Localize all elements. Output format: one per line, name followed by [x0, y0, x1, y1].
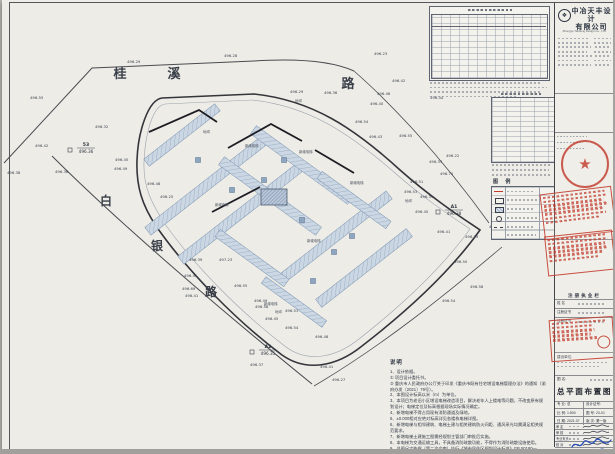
new-elevator-label: 新增电梯 [215, 202, 229, 207]
table-footnote [430, 87, 547, 89]
spot-elevation: 496.55 [399, 133, 413, 138]
drawing-title: 总平面布置图 [555, 386, 614, 397]
spot-elevation: 496.32 [95, 124, 109, 129]
road-name-char: 银 [151, 238, 164, 253]
new-elevator-label: 新增电梯 [307, 238, 321, 243]
seal-star-icon: ★ [578, 157, 591, 172]
spot-elevation: 496.55 [30, 95, 44, 100]
spot-elevation: 496.42 [392, 78, 406, 83]
elevator-box [311, 279, 316, 284]
field-label: 设计证号 [586, 402, 600, 406]
legend-symbol-circle [496, 216, 502, 222]
signature-row: 审 定 [555, 423, 614, 429]
spot-elevation: 496.46 [377, 91, 391, 96]
field-label: 图 号 [586, 411, 594, 415]
notes-title: 说明 [390, 360, 547, 368]
ground-level-label: 地坪 [275, 309, 283, 314]
spot-elevation: 496.38 [7, 170, 21, 175]
ref-elevation: 496.36 [79, 149, 94, 154]
ground-level-label: 地坪 [203, 129, 211, 134]
spot-elevation: 496.37 [250, 362, 264, 367]
spot-elevation: 496.55 [234, 283, 248, 288]
road-name-char: 白 [100, 193, 112, 208]
elevator-box [332, 250, 337, 255]
spot-elevation: 497.23 [219, 257, 233, 262]
legend-symbol-building [495, 198, 504, 204]
elevator-box [300, 218, 305, 223]
red-drawing-release-stamp [549, 316, 615, 362]
spot-elevation: 496.70 [440, 171, 454, 176]
printed-name [569, 432, 580, 434]
spot-elevation: 496.33 [429, 159, 443, 164]
spot-elevation: 496.54 [285, 325, 299, 330]
spot-elevation: 496.45 [115, 157, 129, 162]
spot-elevation: 496.42 [35, 143, 49, 148]
elevator-box [196, 158, 201, 163]
signature-role-label: 校 对 [555, 442, 569, 447]
legend-text [507, 234, 536, 236]
spot-elevation: 496.39 [465, 234, 479, 239]
spot-elevation: 496.27 [332, 377, 346, 382]
road-name-char: 路 [341, 76, 355, 92]
reg-row-label: 姓 名 [555, 300, 578, 308]
field-label: 专 业 [557, 402, 565, 406]
spot-elevation: 496.29 [127, 59, 141, 64]
spot-elevation: 496.39 [189, 257, 203, 262]
field-value: 23-01 [596, 411, 605, 415]
table-grid [431, 14, 548, 79]
spot-elevation: 496.28 [224, 53, 238, 58]
elevator-box [350, 234, 355, 239]
company-name-english: Zhongye Tianfeng Design Co., LTD [556, 29, 613, 33]
spot-elevation: 496.58 [470, 284, 484, 289]
legend-text [507, 226, 533, 228]
new-elevator-label: 新增电梯 [299, 149, 313, 154]
spot-elevation: 496.41 [184, 273, 198, 278]
elevator-box [262, 178, 267, 183]
elevator-box [282, 158, 287, 163]
new-elevator-label: 新增电梯 [264, 301, 278, 306]
spot-elevation: 496.45 [415, 209, 429, 214]
spot-elevation: 496.40 [370, 101, 384, 106]
ref-elevation: 496.35 [261, 351, 276, 356]
micro-text [557, 136, 587, 137]
road-name-char: 桂 [112, 66, 126, 82]
signature-role-label: 审 核 [555, 430, 569, 435]
legend-symbol-dashline [494, 227, 503, 228]
road-name-char: 路 [205, 284, 218, 299]
spot-elevation: 496.36 [324, 90, 338, 95]
ground-level-label: 地坪 [295, 98, 303, 103]
legend-text [507, 217, 537, 219]
field-value: 总 [567, 402, 571, 406]
spot-elevation: 496.50 [454, 259, 468, 264]
paper: 桂溪路白银路496.29496.28496.23496.55496.42496.… [2, 0, 613, 449]
spot-elevation: 496.53 [404, 189, 418, 194]
spot-elevation: 496.43 [369, 134, 383, 139]
spot-elevation: 496.54 [355, 119, 369, 124]
drawing-name-section: 图 名: 总平面布置图 [555, 376, 614, 401]
indicators-note [492, 174, 551, 176]
ref-name: 53 [83, 142, 89, 148]
spot-elevation: 496.69 [182, 286, 196, 291]
legend-symbol-redline [494, 191, 503, 192]
note-line: 6、新增电梯与相邻建筑、电梯土建与相关建筑防火间距、通风采光均需满足相关规范要求… [390, 422, 547, 434]
official-round-seal: ★ [561, 140, 609, 188]
handwritten-signature [582, 424, 610, 429]
company-block: ❖ 中冶天丰设计 有限公司 Zhongye Tianfeng Design Co… [555, 3, 614, 93]
indicators-caption [501, 93, 543, 95]
central-elevator-shaft [261, 189, 287, 205]
spot-elevation: 496.48 [315, 334, 329, 339]
note-line: 3、本项目为老旧小区增设电梯改造项目，解决老年人上楼难等问题，不改变原有规划设计… [390, 398, 547, 410]
fields-section: 专 业: 总 设计证号: 比 例: 1:500 图 号: 23-01 日 期: … [555, 401, 614, 425]
ground-level-label: 地坪 [405, 198, 413, 203]
building-strip [276, 191, 392, 285]
ref-elevation: 496.38 [447, 211, 462, 216]
signature-role-label: 审 定 [555, 424, 569, 429]
building-strip [144, 104, 220, 167]
stamp-mini-seal-icon [597, 335, 611, 349]
general-notes: 说明 1、设计依据。① 项目设计委托书。② 重庆市人民政府办公厅关于印发《重庆市… [390, 360, 547, 454]
ref-square-symbol [436, 210, 440, 214]
spot-elevation: 496.22 [446, 153, 460, 158]
ref-square-symbol [250, 350, 254, 354]
new-elevator-label: 新增电梯 [245, 143, 259, 148]
spot-elevation: 496.41 [320, 364, 334, 369]
table-caption [468, 9, 512, 11]
spot-elevation: 496.41 [437, 229, 451, 234]
registration-header: 注册执业栏 [555, 292, 614, 299]
legend-col-rule [505, 187, 506, 239]
spot-elevation: 496.54 [442, 298, 456, 303]
spot-elevation: 496.51 [285, 308, 299, 313]
spot-elevation: 496.45 [265, 316, 279, 321]
field-label: 比 例 [557, 411, 565, 415]
spot-elevation: 496.49 [114, 166, 128, 171]
legend-symbol-hatched [495, 207, 504, 213]
legend-text [507, 191, 535, 193]
printed-name [569, 426, 580, 428]
scanned-drawing-sheet: 桂溪路白银路496.29496.28496.23496.55496.42496.… [0, 0, 615, 454]
elevator-box [230, 188, 235, 193]
signature-row: 审 核 [555, 429, 614, 435]
ref-name: A2 [265, 344, 272, 350]
spot-elevation: 496.33 [420, 194, 434, 199]
table-header-rule [431, 26, 546, 27]
drawing-name-label: 图 名: [557, 377, 566, 382]
spot-elevation: 496.51 [410, 179, 424, 184]
economic-indicators-table [491, 97, 556, 163]
company-credentials [556, 35, 613, 66]
table-footnote [430, 82, 542, 84]
indicators-note [492, 164, 552, 166]
field-value: 1:500 [567, 411, 576, 415]
spot-elevation: 496.41 [185, 293, 199, 298]
spot-elevation: 496.48 [147, 181, 161, 186]
ref-name: A1 [451, 204, 458, 210]
spot-elevation: 496.29 [290, 89, 304, 94]
page-shadow [0, 449, 615, 454]
road-name-char: 溪 [167, 66, 181, 82]
handwritten-signature [582, 430, 610, 435]
legend-text [507, 199, 537, 201]
spot-elevation: 496.23 [374, 51, 388, 56]
note-line: ② 重庆市人民政府办公厅关于印发《重庆市既有住宅增设电梯管理办法》的通知（渝府办… [390, 381, 547, 393]
legend-text [507, 208, 534, 210]
signature-role-label: 专业负责 [555, 436, 569, 441]
bold-wall [315, 150, 354, 173]
ref-square-symbol [68, 148, 72, 152]
new-elevator-label: 新增电梯 [350, 180, 364, 185]
legend-title: 图 例 [493, 178, 513, 185]
reg-row-label: 注册证书 [555, 309, 578, 317]
spot-elevation: 496.38 [55, 169, 69, 174]
indicators-note [492, 169, 549, 171]
spot-elevation: 496.25 [160, 194, 174, 199]
elevator-schedule-table [429, 6, 550, 81]
red-approval-stamp [544, 230, 615, 277]
